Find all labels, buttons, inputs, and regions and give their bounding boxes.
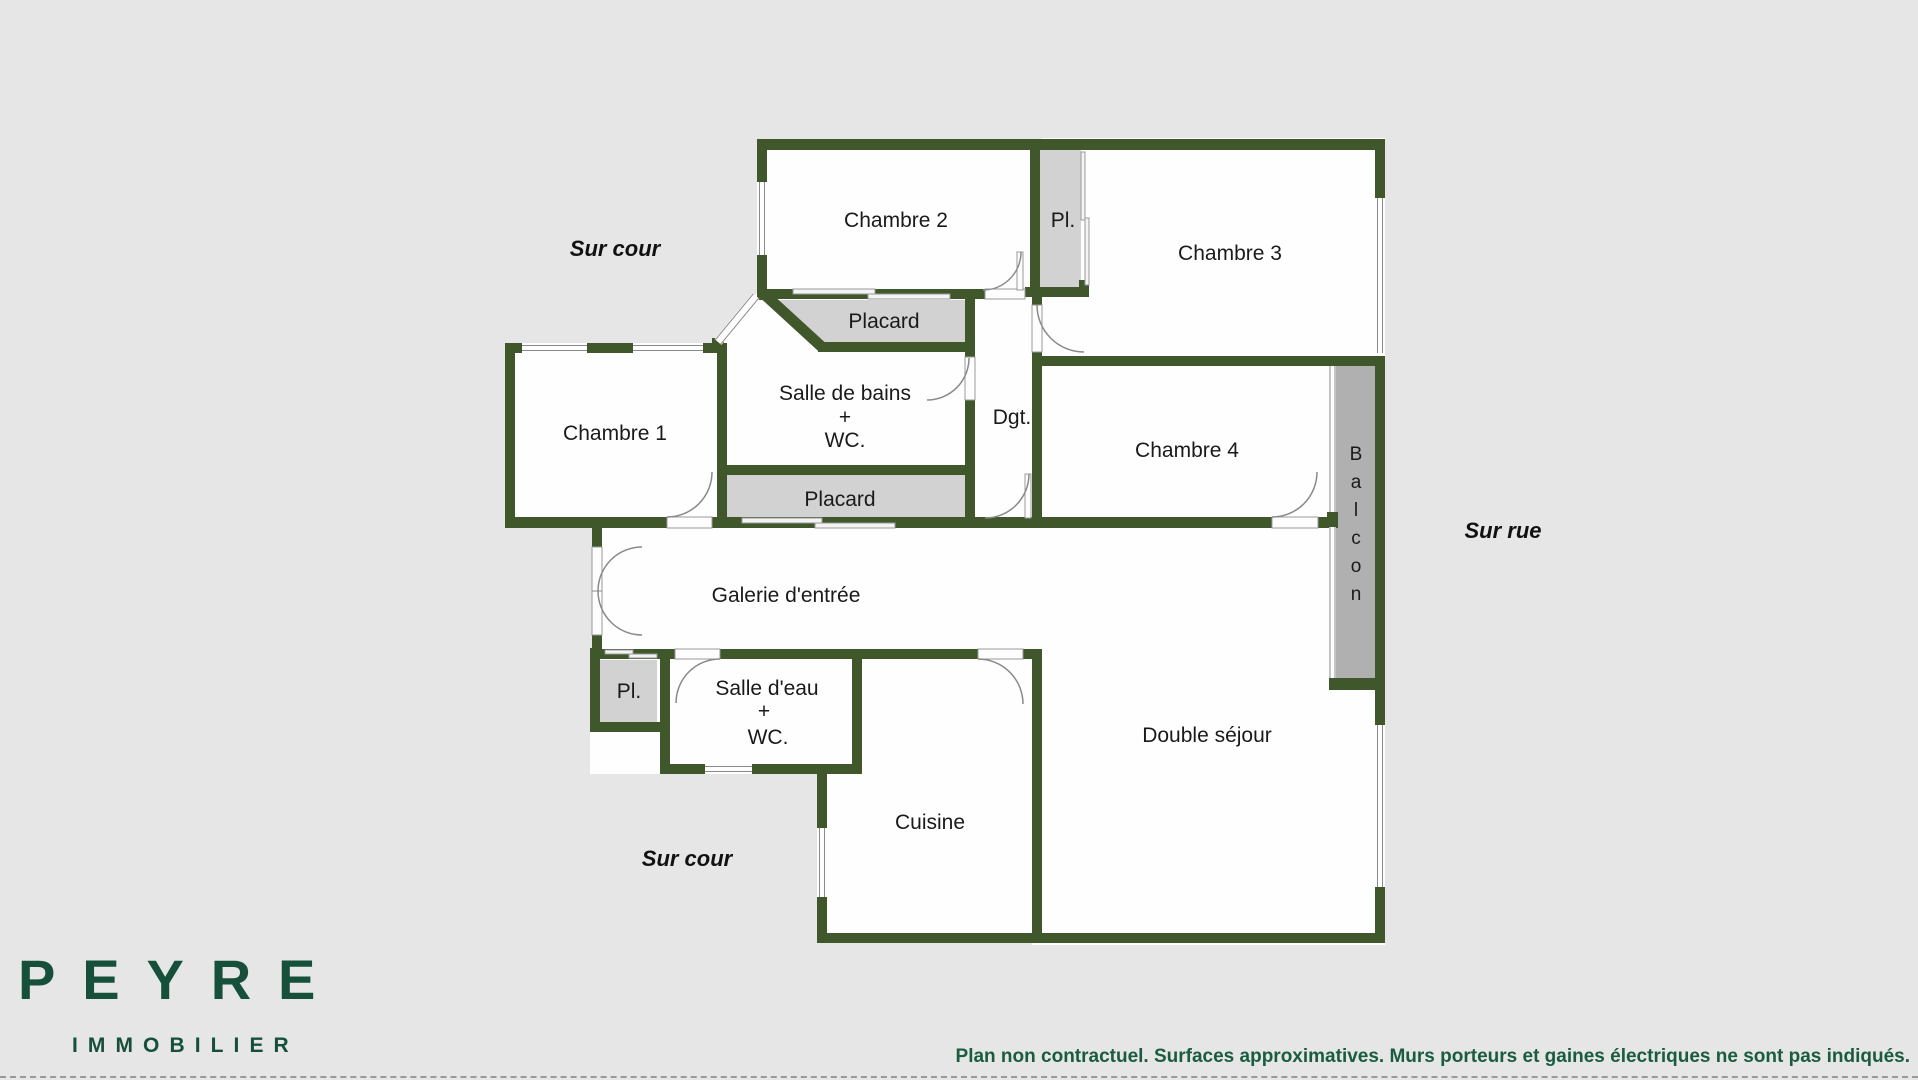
label-chambre1: Chambre 1 <box>563 422 667 445</box>
balcon-letter: l <box>1354 500 1358 521</box>
label-sdb-1: Salle de bains <box>779 382 911 405</box>
balcon-letter: a <box>1351 472 1362 493</box>
label-placard-top: Placard <box>848 310 919 333</box>
annotation-sur-cour-top: Sur cour <box>570 236 662 261</box>
label-sde-1: Salle d'eau <box>715 677 818 700</box>
label-sde-3: WC. <box>748 726 789 749</box>
agency-logo-name: PEYRE <box>18 952 342 1008</box>
label-sejour: Double séjour <box>1142 724 1272 747</box>
floorplan-drawing: Chambre 1 Chambre 2 Chambre 3 Chambre 4 … <box>0 0 1918 1080</box>
label-placard-bottom: Placard <box>804 488 875 511</box>
label-pl-top: Pl. <box>1051 209 1076 232</box>
annotation-sur-rue: Sur rue <box>1464 518 1541 543</box>
bottom-ruler <box>0 1076 1918 1078</box>
balcon-letter: B <box>1350 444 1363 465</box>
balcon-letter: c <box>1351 528 1361 549</box>
label-sde-2: + <box>758 700 770 723</box>
annotation-sur-cour-bottom: Sur cour <box>642 846 734 871</box>
plan-disclaimer: Plan non contractuel. Surfaces approxima… <box>956 1046 1910 1068</box>
agency-logo: PEYRE IMMOBILIER <box>18 952 342 1058</box>
label-chambre2: Chambre 2 <box>844 209 948 232</box>
label-sdb-3: WC. <box>825 429 866 452</box>
label-chambre3: Chambre 3 <box>1178 242 1282 265</box>
balcon-letter: o <box>1351 556 1362 577</box>
agency-logo-tagline: IMMOBILIER <box>72 1034 342 1058</box>
floorplan-page: Chambre 1 Chambre 2 Chambre 3 Chambre 4 … <box>0 0 1918 1080</box>
label-chambre4: Chambre 4 <box>1135 439 1239 462</box>
label-dgt: Dgt. <box>993 406 1032 429</box>
balcon-letter: n <box>1351 584 1362 605</box>
label-pl-entry: Pl. <box>617 680 642 703</box>
label-galerie: Galerie d'entrée <box>712 584 861 607</box>
label-cuisine: Cuisine <box>895 811 965 834</box>
balcony-floor <box>1336 366 1376 682</box>
label-sdb-2: + <box>839 406 851 429</box>
